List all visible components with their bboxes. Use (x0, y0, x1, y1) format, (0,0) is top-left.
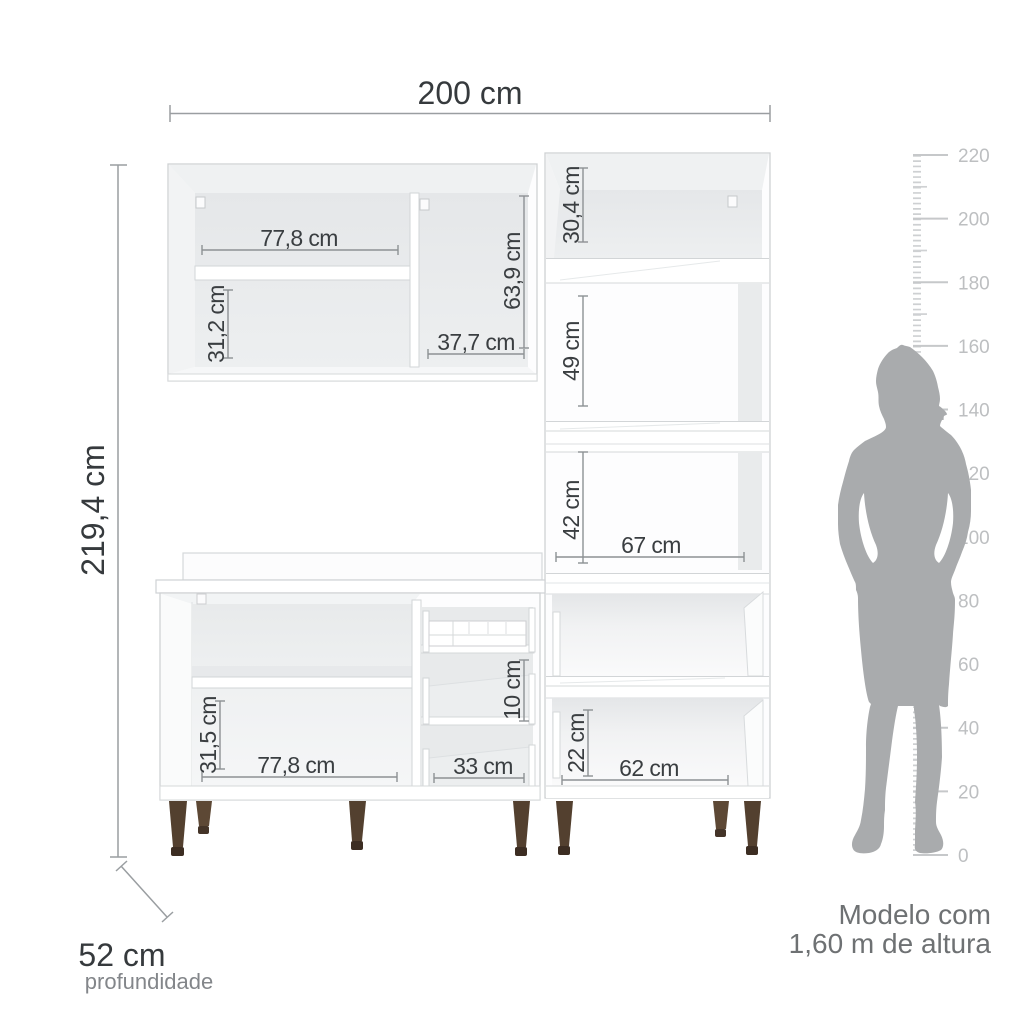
svg-text:Modelo com: Modelo com (838, 899, 991, 930)
svg-text:220: 220 (958, 146, 990, 167)
svg-text:37,7 cm: 37,7 cm (437, 329, 515, 355)
svg-text:63,9 cm: 63,9 cm (499, 232, 525, 310)
svg-text:30,4 cm: 30,4 cm (558, 166, 584, 244)
svg-text:77,8 cm: 77,8 cm (260, 225, 338, 251)
svg-text:180: 180 (958, 273, 990, 294)
svg-text:52 cm: 52 cm (78, 937, 165, 973)
svg-text:31,2 cm: 31,2 cm (203, 285, 229, 363)
svg-text:49 cm: 49 cm (558, 321, 584, 381)
svg-text:200 cm: 200 cm (418, 75, 523, 111)
svg-text:profundidade: profundidade (85, 969, 213, 994)
svg-text:60: 60 (958, 655, 979, 676)
svg-text:40: 40 (958, 719, 979, 740)
svg-text:10 cm: 10 cm (499, 660, 525, 720)
svg-text:20: 20 (958, 782, 979, 803)
svg-text:42 cm: 42 cm (558, 480, 584, 540)
svg-text:0: 0 (958, 846, 969, 867)
svg-text:33 cm: 33 cm (453, 753, 513, 779)
svg-text:80: 80 (958, 592, 979, 613)
svg-text:219,4 cm: 219,4 cm (75, 444, 111, 576)
svg-text:31,5 cm: 31,5 cm (195, 696, 221, 774)
svg-text:77,8 cm: 77,8 cm (257, 752, 335, 778)
svg-text:140: 140 (958, 401, 990, 422)
svg-text:1,60 m de altura: 1,60 m de altura (789, 928, 992, 959)
svg-text:200: 200 (958, 210, 990, 231)
svg-text:160: 160 (958, 337, 990, 358)
svg-text:22 cm: 22 cm (563, 713, 589, 773)
svg-text:62 cm: 62 cm (619, 755, 679, 781)
svg-text:67 cm: 67 cm (621, 532, 681, 558)
